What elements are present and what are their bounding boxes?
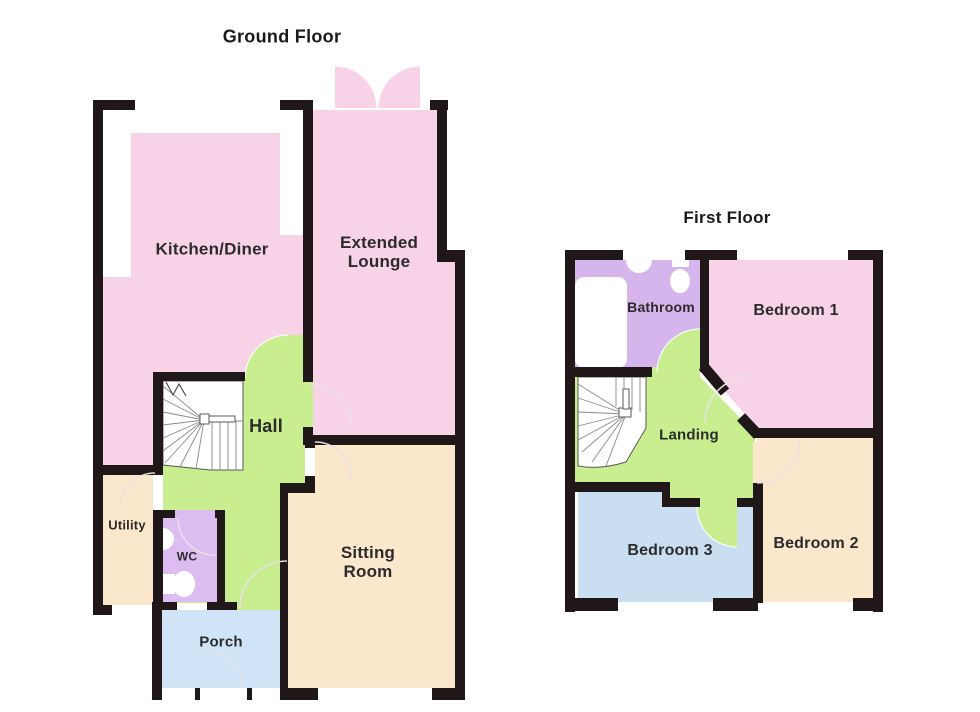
ground-floor-title: Ground Floor <box>223 27 342 48</box>
room-bedroom-1 <box>708 260 873 428</box>
landing-doorway-floor-2 <box>695 498 737 507</box>
wc-doorway-floor <box>175 510 215 518</box>
room-porch <box>162 610 283 688</box>
french-door-leaf-right-icon <box>378 66 420 108</box>
floorplan-drawing <box>0 0 980 712</box>
floorplan-page: { "page": { "background": "#ffffff" }, "… <box>0 0 980 712</box>
room-bedroom-2 <box>757 438 873 602</box>
handrail-icon <box>623 389 629 409</box>
wc-toilet-icon <box>173 571 195 597</box>
bathtub-icon <box>575 277 627 368</box>
bathroom-toilet-icon <box>670 269 690 293</box>
first-floor-plan <box>565 250 883 612</box>
hall-doorway-floor-3 <box>237 602 283 610</box>
french-door-leaf-left-icon <box>335 66 377 108</box>
room-utility <box>103 475 153 605</box>
room-extended-lounge <box>313 110 455 440</box>
first-floor-title: First Floor <box>683 208 770 228</box>
newel-post-icon <box>200 414 209 424</box>
hall-strip <box>288 335 303 375</box>
ground-floor-plan <box>93 66 465 700</box>
ground-staircase <box>163 381 243 470</box>
hall-doorway-floor-2 <box>303 382 313 427</box>
handrail-icon <box>209 416 235 422</box>
